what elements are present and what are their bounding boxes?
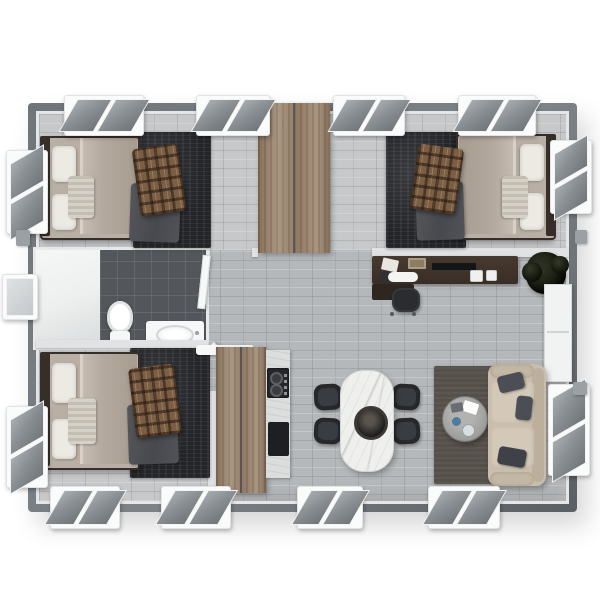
dining-chair xyxy=(313,417,342,444)
bed-knit-throw xyxy=(68,176,94,218)
bed-pillow xyxy=(52,363,76,403)
corner-tab xyxy=(573,382,587,395)
bed-knit-throw xyxy=(68,398,96,444)
pantry-cabinet xyxy=(216,347,266,493)
bed-1 xyxy=(40,136,140,240)
kitchen-counter xyxy=(266,350,290,478)
desk-mug xyxy=(470,270,483,282)
wardrobe-door-seam xyxy=(293,103,295,253)
desk-keyboard xyxy=(388,272,418,282)
window-top-2 xyxy=(196,95,270,136)
office-chair-wheel-icon xyxy=(412,312,416,316)
dining-chair xyxy=(391,417,420,444)
shower-stall xyxy=(36,250,102,347)
cooktop-burner xyxy=(270,384,283,397)
corner-tab xyxy=(16,230,30,246)
zone-bathroom xyxy=(36,250,206,347)
window-bottom-3 xyxy=(297,486,363,529)
bed-knit-throw xyxy=(502,176,528,218)
window-left-1 xyxy=(6,150,48,234)
oven xyxy=(268,422,289,456)
office-chair-wheel-icon xyxy=(390,312,394,316)
window-top-4 xyxy=(458,95,536,136)
window-bottom-2 xyxy=(161,486,231,529)
plaid-blanket xyxy=(128,363,182,438)
sofa-pillow xyxy=(515,395,533,421)
cooktop-knobs xyxy=(284,371,287,395)
toilet-bowl xyxy=(107,301,133,333)
bed-2 xyxy=(456,134,556,240)
window-left-2 xyxy=(6,406,48,488)
window-right-1 xyxy=(550,140,592,214)
dining-chair xyxy=(391,383,420,410)
coffee-table-paper xyxy=(462,400,480,415)
floorplan-canvas xyxy=(0,0,600,600)
coffee-table-magazine xyxy=(450,402,463,413)
zone-kitchen xyxy=(216,344,292,494)
coffee-table-glass xyxy=(462,424,475,437)
dining-chair xyxy=(313,383,342,410)
dining-table xyxy=(340,370,394,472)
plaid-blanket xyxy=(131,143,186,217)
sofa xyxy=(488,364,546,486)
faucet-icon xyxy=(195,331,199,335)
office-chair xyxy=(392,288,420,312)
window-bottom-4 xyxy=(428,486,500,529)
cooktop xyxy=(267,368,289,398)
desk-monitor xyxy=(432,263,476,270)
bed-3 xyxy=(40,352,140,470)
desk-books xyxy=(408,258,426,269)
storage-cabinet-white xyxy=(544,284,572,382)
window-bathroom xyxy=(2,274,38,320)
table-centerpiece-bowl xyxy=(354,406,388,440)
window-right-2 xyxy=(548,384,590,476)
window-bottom-1 xyxy=(50,486,120,529)
window-top-3 xyxy=(333,95,405,136)
corner-tab xyxy=(575,230,587,244)
pantry-door-seam xyxy=(240,347,242,493)
zone-dining xyxy=(310,366,426,476)
coffee-table xyxy=(442,396,488,442)
window-pane xyxy=(6,278,34,316)
desk-mug xyxy=(486,270,497,281)
window-top-1 xyxy=(64,95,144,136)
bathroom-bottom-wall xyxy=(36,340,208,348)
toilet xyxy=(107,301,134,345)
plaid-blanket xyxy=(410,143,465,215)
coffee-table-cup xyxy=(452,417,461,426)
sofa-armrest xyxy=(490,472,534,486)
desk xyxy=(372,256,518,284)
